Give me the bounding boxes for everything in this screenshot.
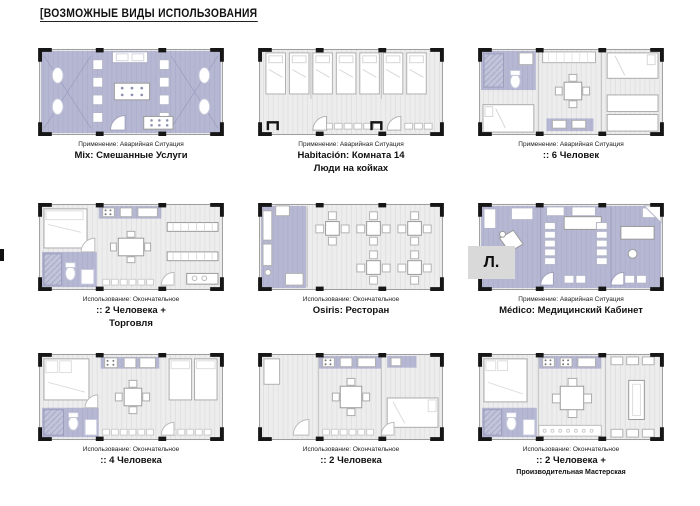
plan-caption: Применение: Аварийная Ситуация Médico: М… <box>463 296 679 318</box>
plan-title: :: 2 Человека <box>251 455 451 467</box>
plan-title: Médico: Медицинский Кабинет <box>463 305 679 317</box>
usage-label: Применение: Аварийная Ситуация <box>251 141 451 149</box>
usage-label: Использование: Окончательное <box>251 446 451 454</box>
usage-label: Использование: Окончательное <box>251 296 451 304</box>
plan-subtitle: Люди на койках <box>251 163 451 175</box>
plan-cell-mix-services: Применение: Аварийная Ситуация Mix: Смеш… <box>31 48 231 163</box>
plan-caption: Применение: Аварийная Ситуация Mix: Смеш… <box>31 141 231 163</box>
plan-cell-two-people-workshop: Использование: Окончательное :: 2 Челове… <box>463 353 679 477</box>
floor-plan-trade-drawing <box>36 203 226 291</box>
plan-cell-two-people-trade: Использование: Окончательное :: 2 Челове… <box>31 203 231 330</box>
floor-plan-four-people-drawing <box>36 353 226 441</box>
plan-title: Mix: Смешанные Услуги <box>31 150 231 162</box>
plan-caption: Использование: Окончательное :: 2 Челове… <box>251 446 451 468</box>
plan-title: :: 2 Человека + <box>31 305 231 317</box>
plan-cell-osiris-restaurant: Использование: Окончательное Osiris: Рес… <box>251 203 451 318</box>
plan-cell-six-people: Применение: Аварийная Ситуация :: 6 Чело… <box>463 48 679 163</box>
plan-title: Osiris: Ресторан <box>251 305 451 317</box>
plan-caption: Применение: Аварийная Ситуация :: 6 Чело… <box>463 141 679 163</box>
plan-caption: Использование: Окончательное :: 4 Челове… <box>31 446 231 468</box>
floor-plan-six-people-drawing <box>476 48 666 136</box>
plan-subtitle: Торговля <box>31 318 231 330</box>
plan-title: :: 2 Человека + <box>463 455 679 467</box>
floor-plan-dormitory-drawing <box>256 48 446 136</box>
plan-title: Habitación: Комната 14 <box>251 150 451 162</box>
plan-cell-four-people: Использование: Окончательное :: 4 Челове… <box>31 353 231 468</box>
usage-label: Применение: Аварийная Ситуация <box>31 141 231 149</box>
page-edge-mark <box>0 249 4 261</box>
usage-label: Использование: Окончательное <box>31 446 231 454</box>
floor-plan-two-people-drawing <box>256 353 446 441</box>
usage-label: Использование: Окончательное <box>31 296 231 304</box>
plan-cell-habitacion: Применение: Аварийная Ситуация Habitació… <box>251 48 451 175</box>
plan-caption: Использование: Окончательное Osiris: Рес… <box>251 296 451 318</box>
floor-plan-restaurant-drawing <box>256 203 446 291</box>
plan-caption: Применение: Аварийная Ситуация Habitació… <box>251 141 451 175</box>
plan-caption: Использование: Окончательное :: 2 Челове… <box>31 296 231 330</box>
plan-title: :: 4 Человека <box>31 455 231 467</box>
logo-mark: Л. <box>468 246 515 279</box>
plan-subtitle: Производительная Мастерская <box>463 468 679 477</box>
plan-caption: Использование: Окончательное :: 2 Челове… <box>463 446 679 477</box>
floor-plan-mix-services-drawing <box>36 48 226 136</box>
usage-label: Применение: Аварийная Ситуация <box>463 296 679 304</box>
plan-cell-two-people: Использование: Окончательное :: 2 Челове… <box>251 353 451 468</box>
floor-plan-workshop-drawing <box>476 353 666 441</box>
plan-cell-medico: Л. Применение: Аварийная Ситуация Médico… <box>463 203 679 318</box>
plan-title: :: 6 Человек <box>463 150 679 162</box>
usage-label: Использование: Окончательное <box>463 446 679 454</box>
page-title: [ВОЗМОЖНЫЕ ВИДЫ ИСПОЛЬЗОВАНИЯ <box>40 8 257 22</box>
usage-label: Применение: Аварийная Ситуация <box>463 141 679 149</box>
